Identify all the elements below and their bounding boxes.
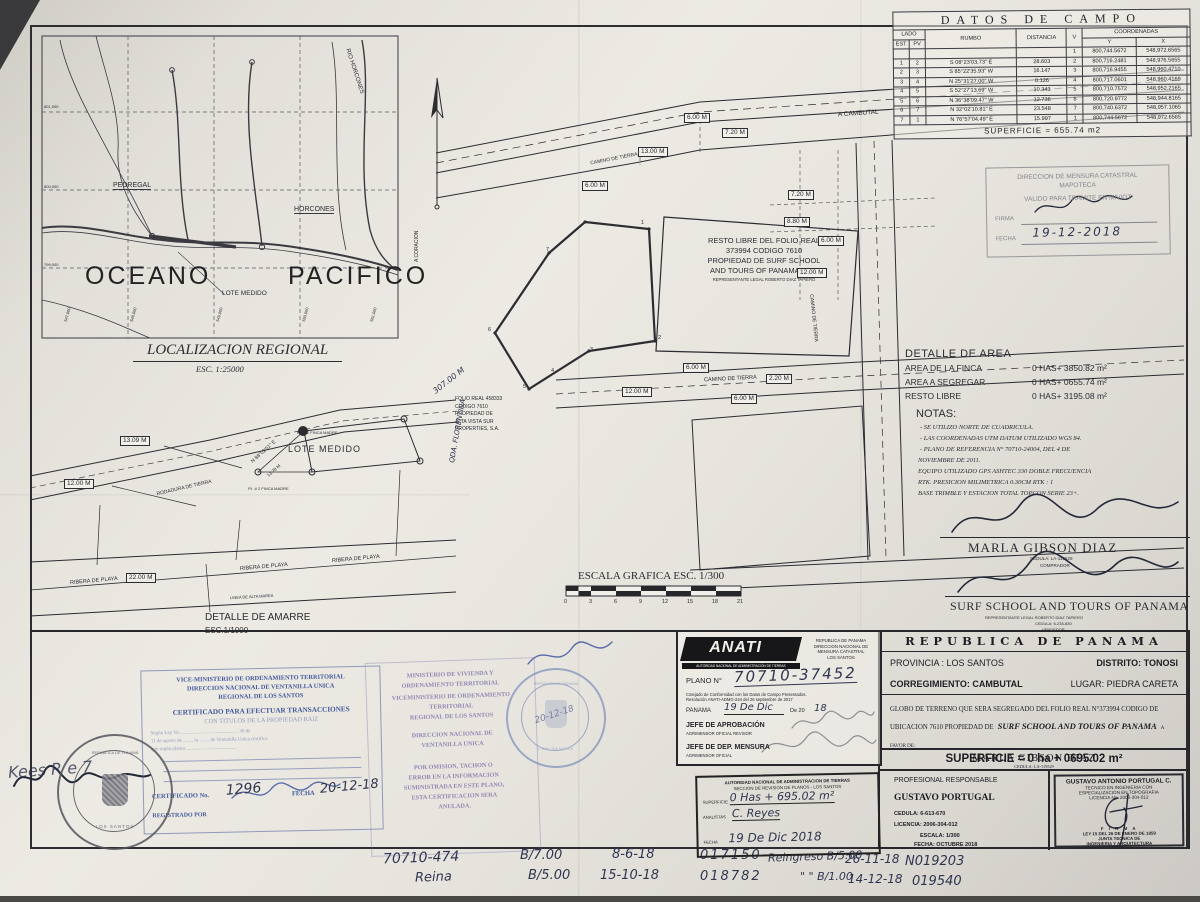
seal-bottom-text: LOS SANTOS <box>508 746 604 751</box>
distrito: DISTRITO: TONOSI <box>1096 658 1178 668</box>
buyer-name: MARLA GIBSON DIAZ <box>968 540 1117 556</box>
cell-pv: 5 <box>910 87 926 97</box>
dim-label: 13.09 M <box>120 436 150 446</box>
prof-escala: ESCALA: 1/300 <box>920 833 960 839</box>
plano-label: PLANO N° <box>686 676 722 685</box>
cell-dist: 15.997 <box>1017 114 1067 124</box>
los-santos-round-seal: REPÚBLICA DE PANAMÁ LOS SANTOS <box>57 734 173 850</box>
cell-v: 4 <box>1067 76 1083 86</box>
cell-v: 3 <box>1067 66 1083 76</box>
scale-tick: 21 <box>737 599 743 605</box>
anati-header: REPUBLICA DE PANAMA DIRECCION NACIONAL D… <box>806 638 876 660</box>
mapoteca-stamp: DIRECCION DE MENSURA CATASTRAL MAPOTECA … <box>985 164 1171 257</box>
cell-pv: 3 <box>909 68 925 78</box>
dim-label: 12.00 M <box>797 268 827 278</box>
firma-label: FIRMA <box>995 216 1014 222</box>
cell-y: 800,720.9772 <box>1083 94 1137 104</box>
panama-label: PANAMA <box>686 708 711 714</box>
seal-bottom-text: LOS SANTOS <box>59 824 171 829</box>
inset-scale: ESC. 1:25000 <box>196 364 244 374</box>
area-row-label: AREA A SEGREGAR <box>905 377 985 387</box>
prof-fecha: FECHA: OCTUBRE 2018 <box>914 842 977 848</box>
buyer-signature-line <box>940 537 1190 538</box>
scale-tick: 9 <box>639 599 642 605</box>
buyer-cedula: CEDULA: LA-119529 <box>1030 556 1072 561</box>
vertex-number: 4 <box>551 368 554 374</box>
jefe-mensura-label: JEFE DE DEP. MENSURA <box>686 744 770 751</box>
dim-label: 7.20 M <box>788 190 814 200</box>
cell-pv: 4 <box>909 77 925 87</box>
detalle-amarre-title: DETALLE DE AMARRE <box>205 612 310 623</box>
anati-header-line: REPUBLICA DE PANAMA <box>806 638 876 644</box>
cell-v: 6 <box>1067 95 1083 105</box>
cell-v: 1 <box>1067 47 1083 57</box>
prof-cedula: CEDULA: 6-613-670 <box>894 811 945 817</box>
inset-coord-y: 800,000 <box>44 184 58 189</box>
cell-est: 7 <box>894 115 910 125</box>
scanned-survey-plan-photo: PEDREGAL HORCONES RIO HORCONES OCEANO PA… <box>0 0 1200 902</box>
hw-receipt: 019540 <box>912 874 962 889</box>
cell-y: 800,716.9455 <box>1083 66 1137 76</box>
area-row-label: RESTO LIBRE <box>905 391 961 401</box>
province-row: PROVINCIA : LOS SANTOS DISTRITO: TONOSI <box>880 652 1188 673</box>
vertex-number: 1 <box>641 220 644 226</box>
seller-signature-line <box>945 596 1190 597</box>
scale-tick: 6 <box>614 599 617 605</box>
cell-est: 4 <box>894 87 910 97</box>
pi-finca-madre-label: P.I. # 2 FINCA MADRE <box>297 430 338 435</box>
cell-y: 800,716.2481 <box>1083 56 1137 66</box>
resto-line: PROPIEDAD DE SURF SCHOOL <box>668 256 860 266</box>
anati-logo-text: ANATI <box>709 639 762 657</box>
inset-label-oceano: OCEANO <box>85 262 211 291</box>
cell-x: 548,960.4169 <box>1137 74 1191 84</box>
vertex-number: 7 <box>546 247 549 253</box>
cell-pv: 7 <box>910 106 926 116</box>
cell-est: 2 <box>893 68 909 78</box>
cell-v: 7 <box>1067 104 1083 114</box>
resolucion-line: Resolución ANATI-ADMG-244 del 26 septiem… <box>686 697 874 702</box>
hw-reingreso: " " B/1.00 <box>800 870 853 883</box>
seller-cedula: CEDULA: 6-235-830 <box>1035 621 1072 626</box>
professional-row: PROFESIONAL RESPONSABLE GUSTAVO PORTUGAL… <box>880 771 1188 850</box>
analistas-label: ANALISTAS <box>703 814 726 819</box>
col-header-x: X <box>1136 36 1190 46</box>
vertex-number: 6 <box>488 327 491 333</box>
desc-company: SURF SCHOOL AND TOURS OF PANAMA <box>998 721 1157 731</box>
dim-label: 22.00 M <box>126 573 156 583</box>
cell-dist: 10.343 <box>1017 85 1067 95</box>
jefe-aprobacion-sub: AGRIMENSOR OFICIAL REVISOR <box>686 731 752 736</box>
dim-label: 8.80 M <box>784 217 810 227</box>
cell-est <box>893 49 909 59</box>
fecha-handwritten: 19-12-2018 <box>1032 224 1122 240</box>
inset-coord-y: 799,000 <box>44 262 58 267</box>
table-superficie: SUPERFICIE = 655.74 m2 <box>894 122 1191 139</box>
scale-tick: 18 <box>712 599 718 605</box>
scale-tick: 15 <box>687 599 693 605</box>
dim-label: 6.00 M <box>683 363 709 373</box>
cell-x: 548,976.5655 <box>1136 55 1190 65</box>
cell-dist: 0.126 <box>1017 76 1067 86</box>
inset-label-pacifico: PACIFICO <box>288 262 428 291</box>
notes-title: NOTAS: <box>916 408 956 420</box>
cell-y: 800,744.5672 <box>1082 47 1136 57</box>
cell-pv: 6 <box>910 96 926 106</box>
blue-round-seal: REPÚBLICA DE PANAMÁ LOS SANTOS 20-12-18 <box>506 668 606 768</box>
hw-name: Reina <box>415 869 452 885</box>
hw-receipt: 018782 <box>700 869 762 884</box>
certificado-no-handwritten: 1296 <box>225 780 262 799</box>
superficie-row: SUPERFICIE = 0 ha + 0695.02 m² <box>880 748 1188 771</box>
scale-tick: 0 <box>564 599 567 605</box>
note-item: NOVIEMBRE DE 2011. <box>918 457 981 464</box>
cell-est: 5 <box>894 96 910 106</box>
cell-dist: 12.736 <box>1017 95 1067 105</box>
superficie-handwritten: 0 Has + 695.02 m² <box>729 789 834 805</box>
inset-label-pedregal: PEDREGAL <box>113 182 151 190</box>
seal-top-text: REPÚBLICA DE PANAMÁ <box>508 682 604 686</box>
stamp-line: LICENCIA No. 2006-304-012 <box>1056 794 1182 800</box>
area-row-label: AREA DE LA FINCA <box>905 363 982 373</box>
dim-label: 13.00 M <box>638 147 668 157</box>
hw-date: 8-6-18 <box>612 847 654 862</box>
revision-planos-stamp: AUTORIDAD NACIONAL DE ADMINISTRACION DE … <box>695 772 881 858</box>
cell-x: 548,952.2165 <box>1137 84 1191 94</box>
area-row-value: 0 HAS+ 3850.82 m² <box>1032 363 1107 373</box>
col-header-distancia: DISTANCIA <box>1016 28 1066 48</box>
analistas-handwritten: C. Reyes <box>732 806 780 821</box>
fecha-label: FECHA <box>292 790 315 797</box>
col-header-lado: LADO <box>893 30 925 40</box>
title-block: REPUBLICA DE PANAMA PROVINCIA : LOS SANT… <box>878 630 1190 849</box>
field-data-table: DATOS DE CAMPO LADO RUMBO DISTANCIA V CO… <box>892 8 1191 139</box>
inset-coord-y: 801,000 <box>44 104 58 109</box>
corregimiento-row: CORREGIMIENTO: CAMBUTAL LUGAR: PIEDRA CA… <box>880 673 1188 695</box>
cell-y: 800,717.0601 <box>1083 75 1137 85</box>
dim-label: 6.00 M <box>731 394 757 404</box>
area-row-value: 0 HAS+ 0655.74 m² <box>1032 377 1107 387</box>
area-row-value: 0 HAS+ 3195.08 m² <box>1032 391 1107 401</box>
lugar: LUGAR: PIEDRA CARETA <box>1071 679 1178 689</box>
dim-label: 6.00 M <box>582 181 608 191</box>
country-title: REPUBLICA DE PANAMA <box>880 632 1188 652</box>
cell-pv: 1 <box>910 115 926 125</box>
area-detail-title: DETALLE DE AREA <box>905 348 1011 360</box>
hw-date: 15-10-18 <box>600 868 659 883</box>
cell-x: 548,944.8165 <box>1137 93 1191 103</box>
provincia: PROVINCIA : LOS SANTOS <box>890 658 1004 668</box>
fecha-line <box>1022 242 1158 245</box>
cell-dist: 28.603 <box>1017 57 1067 67</box>
anati-header-line: LOS SANTOS <box>806 655 876 661</box>
buyer-role: COMPRADOR <box>1040 563 1070 568</box>
col-header-pv: PV <box>909 39 925 49</box>
prof-licencia: LICENCIA: 2006-304-012 <box>894 822 958 828</box>
dim-label: 2.20 M <box>766 374 792 384</box>
hw-receipt: N019203 <box>905 854 964 869</box>
dim-label: 6.00 M <box>818 236 844 246</box>
stamp-line: INGENIERIA Y ARQUITECTURA <box>1056 840 1182 846</box>
fecha-label: FECHA <box>995 236 1015 242</box>
vertex-number: 5 <box>523 384 526 390</box>
stamp-line: MAPOTECA <box>987 180 1169 190</box>
inset-label-horcones: HORCONES <box>294 206 334 214</box>
pi-finca-madre-label: P.I. # 2 FINCA MADRE <box>248 486 289 491</box>
scale-tick: 12 <box>662 599 668 605</box>
cotejo-text: Cotejado de Conformidad con los Datos de… <box>686 692 874 703</box>
description-cell: GLOBO DE TERRENO QUE SERA SEGREGADO DEL … <box>880 695 1188 748</box>
prof-name: GUSTAVO PORTUGAL <box>894 793 995 803</box>
cell-v: 5 <box>1067 85 1083 95</box>
anati-approval-box: ANATI AUTORIDAD NACIONAL DE ADMINISTRACI… <box>676 630 882 766</box>
stamp-body-line: 11 de agosto de ........ la ........ de … <box>151 737 268 744</box>
prof-label: PROFESIONAL RESPONSABLE <box>894 777 998 784</box>
de20-label: De 20 <box>790 708 805 714</box>
jefe-mensura-sub: AGRIMENSOR OFICIAL <box>686 753 732 758</box>
stamp-body-line: Según Ley No. ..........................… <box>151 729 251 736</box>
col-header-v: V <box>1066 28 1082 47</box>
anati-logo: ANATI <box>680 637 802 661</box>
cell-pv: 2 <box>909 58 925 68</box>
cell-x: 548,972.6565 <box>1136 46 1190 56</box>
cell-y: 800,744.5672 <box>1083 113 1137 123</box>
anulacion-warning-stamp: MINISTERIO DE VIVIENDA Y ORDENAMIENTO TE… <box>365 657 542 857</box>
note-item: EQUIPO UTILIZADO GPS ASHTEC 330 DOBLE FR… <box>918 468 1091 475</box>
col-header-est: EST <box>893 39 909 49</box>
jefe-aprobacion-label: JEFE DE APROBACIÓN <box>686 722 765 729</box>
cell-x: 548,960.4710 <box>1137 65 1191 75</box>
fecha-handwritten: 19 De Dic 2018 <box>728 829 821 845</box>
seller-name: SURF SCHOOL AND TOURS OF PANAMA <box>950 599 1189 614</box>
portugal-stamp: GUSTAVO ANTONIO PORTUGAL C. TECNICO EN I… <box>1054 773 1185 847</box>
road-label-a-coracion: A CORACION <box>414 231 420 262</box>
resto-line: AND TOURS OF PANAMA, S.A. <box>668 266 860 276</box>
date-line <box>724 714 784 715</box>
professional-cell: PROFESIONAL RESPONSABLE GUSTAVO PORTUGAL… <box>880 771 1050 850</box>
note-item: RTK. PRESICION MILIMETRICA 0.30CM RTK : … <box>918 479 1053 486</box>
cell-v: 2 <box>1067 57 1083 67</box>
hw-amount: B/5.00 <box>528 868 570 883</box>
note-item: - PLANO DE REFERENCIA N° 70710-24004, DE… <box>920 446 1070 453</box>
cell-est: 1 <box>893 58 909 68</box>
cell-x: 548,972.6565 <box>1137 112 1191 122</box>
portugal-stamp-cell: GUSTAVO ANTONIO PORTUGAL C. TECNICO EN I… <box>1050 771 1188 850</box>
cell-dist: 16.147 <box>1017 66 1067 76</box>
cell-dist: 23.548 <box>1017 104 1067 114</box>
inset-label-lote-medido: LOTE MEDIDO <box>222 290 267 297</box>
stamp-line: VALIDO PARA TRAMITE EN MIVIOT <box>987 193 1169 203</box>
cell-y: 800,740.6372 <box>1083 104 1137 114</box>
dim-label: 7.20 M <box>722 128 748 138</box>
cell-x: 548,957.1065 <box>1137 103 1191 113</box>
note-item: - LAS COORDENADAS UTM DATUM UTILIZADO WG… <box>920 435 1082 442</box>
panama-date-handwritten: 19 De Dic <box>724 702 773 713</box>
cell-v: 1 <box>1067 114 1083 124</box>
lote-medido-label: LOTE MEDIDO <box>288 444 361 454</box>
cell-y: 800,710.7572 <box>1083 85 1137 95</box>
dim-label: 12.00 M <box>622 387 652 397</box>
scale-bar-title: ESCALA GRAFICA ESC. 1/300 <box>578 570 724 582</box>
fecha-label: FECHA <box>704 839 718 844</box>
cell-pv <box>909 49 925 59</box>
note-item: BASE TRIMBLE Y ESTACION TOTAL TOPCON SER… <box>918 490 1079 497</box>
year-handwritten: 18 <box>814 703 827 714</box>
blank-line <box>163 757 361 762</box>
blank-line <box>163 767 361 772</box>
hw-date: 14-12-18 <box>848 872 902 886</box>
superficie-label: SUPERFICIE <box>703 799 728 805</box>
scale-tick: 3 <box>589 599 592 605</box>
dim-label: 6.00 M <box>684 113 710 123</box>
seal-coat-of-arms <box>102 774 128 806</box>
col-header-rumbo: RUMBO <box>925 29 1017 49</box>
cell-est: 6 <box>894 106 910 116</box>
seller-rep: REPRESENTANTE LEGAL ROBERTO DIAZ TAPIERO <box>985 615 1083 620</box>
inset-title: LOCALIZACION REGIONAL <box>133 342 342 362</box>
cell-est: 3 <box>894 77 910 87</box>
vertex-number: 3 <box>590 347 593 353</box>
ventanilla-certificado-stamp: VICE-MINISTERIO DE ORDENAMIENTO TERRITOR… <box>140 666 383 835</box>
cell-dist <box>1017 47 1067 57</box>
vertex-number: 2 <box>658 335 661 341</box>
resto-line: REPRESENTANTE LEGAL ROBERTO DIAZ TAPIERO <box>668 276 860 283</box>
note-item: - SE UTILIZO NORTE DE CUADRICULA. <box>920 424 1033 431</box>
dim-label: 12.00 M <box>64 479 94 489</box>
seal-top-text: REPÚBLICA DE PANAMÁ <box>59 750 171 755</box>
col-header-y: Y <box>1082 37 1136 47</box>
plano-number-handwritten: 70710-37452 <box>734 664 857 687</box>
corregimiento: CORREGIMIENTO: CAMBUTAL <box>890 679 1023 689</box>
resto-line: 373994 CODIGO 7610 <box>668 246 860 256</box>
